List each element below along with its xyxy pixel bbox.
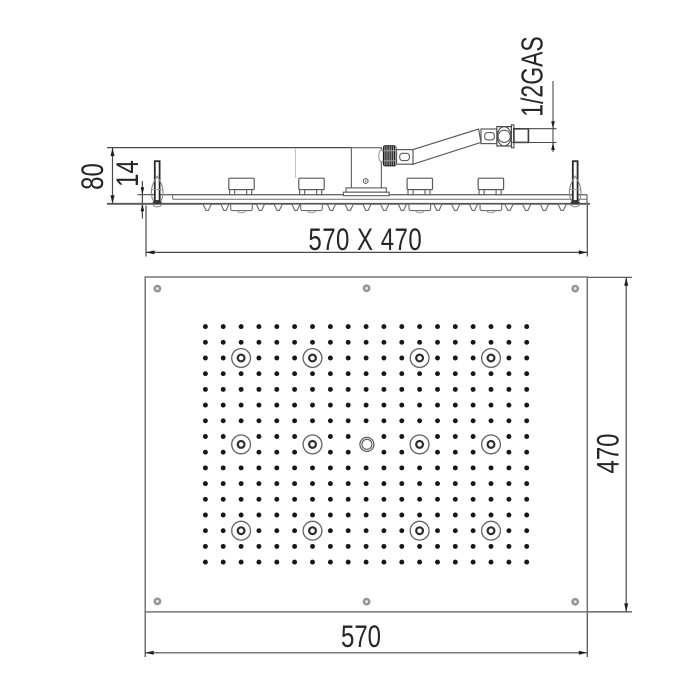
svg-text:1/2GAS: 1/2GAS [516, 36, 550, 117]
svg-text:570 X 470: 570 X 470 [308, 222, 422, 257]
svg-text:470: 470 [590, 433, 625, 473]
svg-text:80: 80 [75, 163, 110, 190]
svg-text:570: 570 [341, 619, 381, 654]
svg-text:14: 14 [110, 160, 145, 187]
